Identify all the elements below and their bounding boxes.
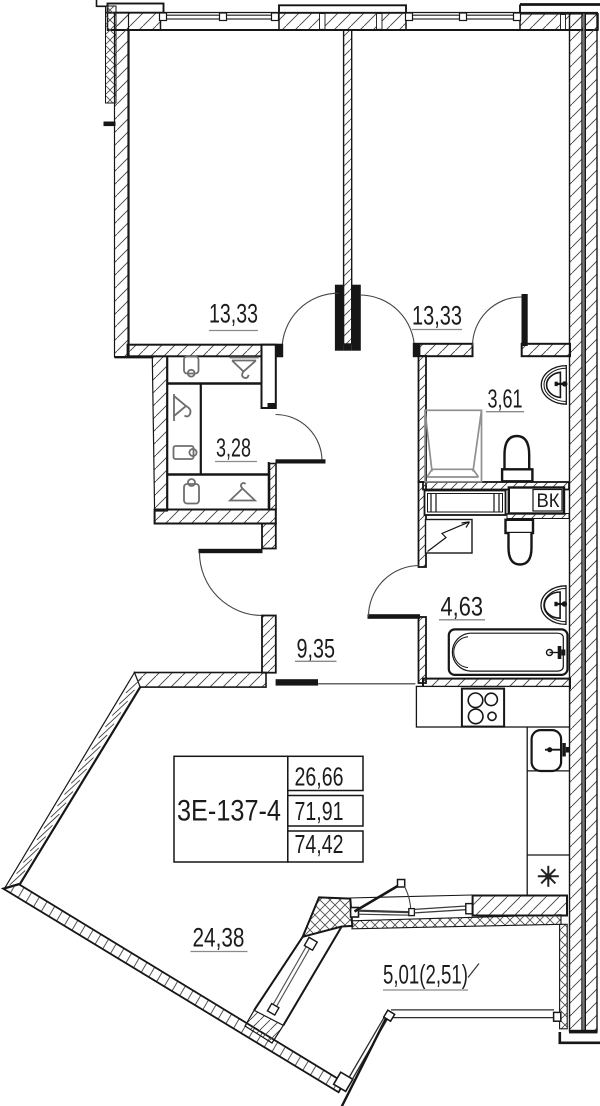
svg-text:74,42: 74,42 [295,829,344,859]
svg-text:13,33: 13,33 [412,301,462,331]
svg-text:13,33: 13,33 [209,299,258,329]
svg-text:3,61: 3,61 [488,384,523,414]
svg-text:4,63: 4,63 [441,592,484,622]
svg-text:9,35: 9,35 [297,634,336,664]
svg-text:3,28: 3,28 [216,433,251,463]
svg-text:71,91: 71,91 [295,796,344,826]
svg-text:26,66: 26,66 [295,762,344,792]
svg-text:3Е-137-4: 3Е-137-4 [177,795,281,828]
svg-text:ВК: ВК [537,491,560,512]
svg-text:24,38: 24,38 [193,923,245,953]
svg-text:5,01(2,51): 5,01(2,51) [383,960,468,990]
